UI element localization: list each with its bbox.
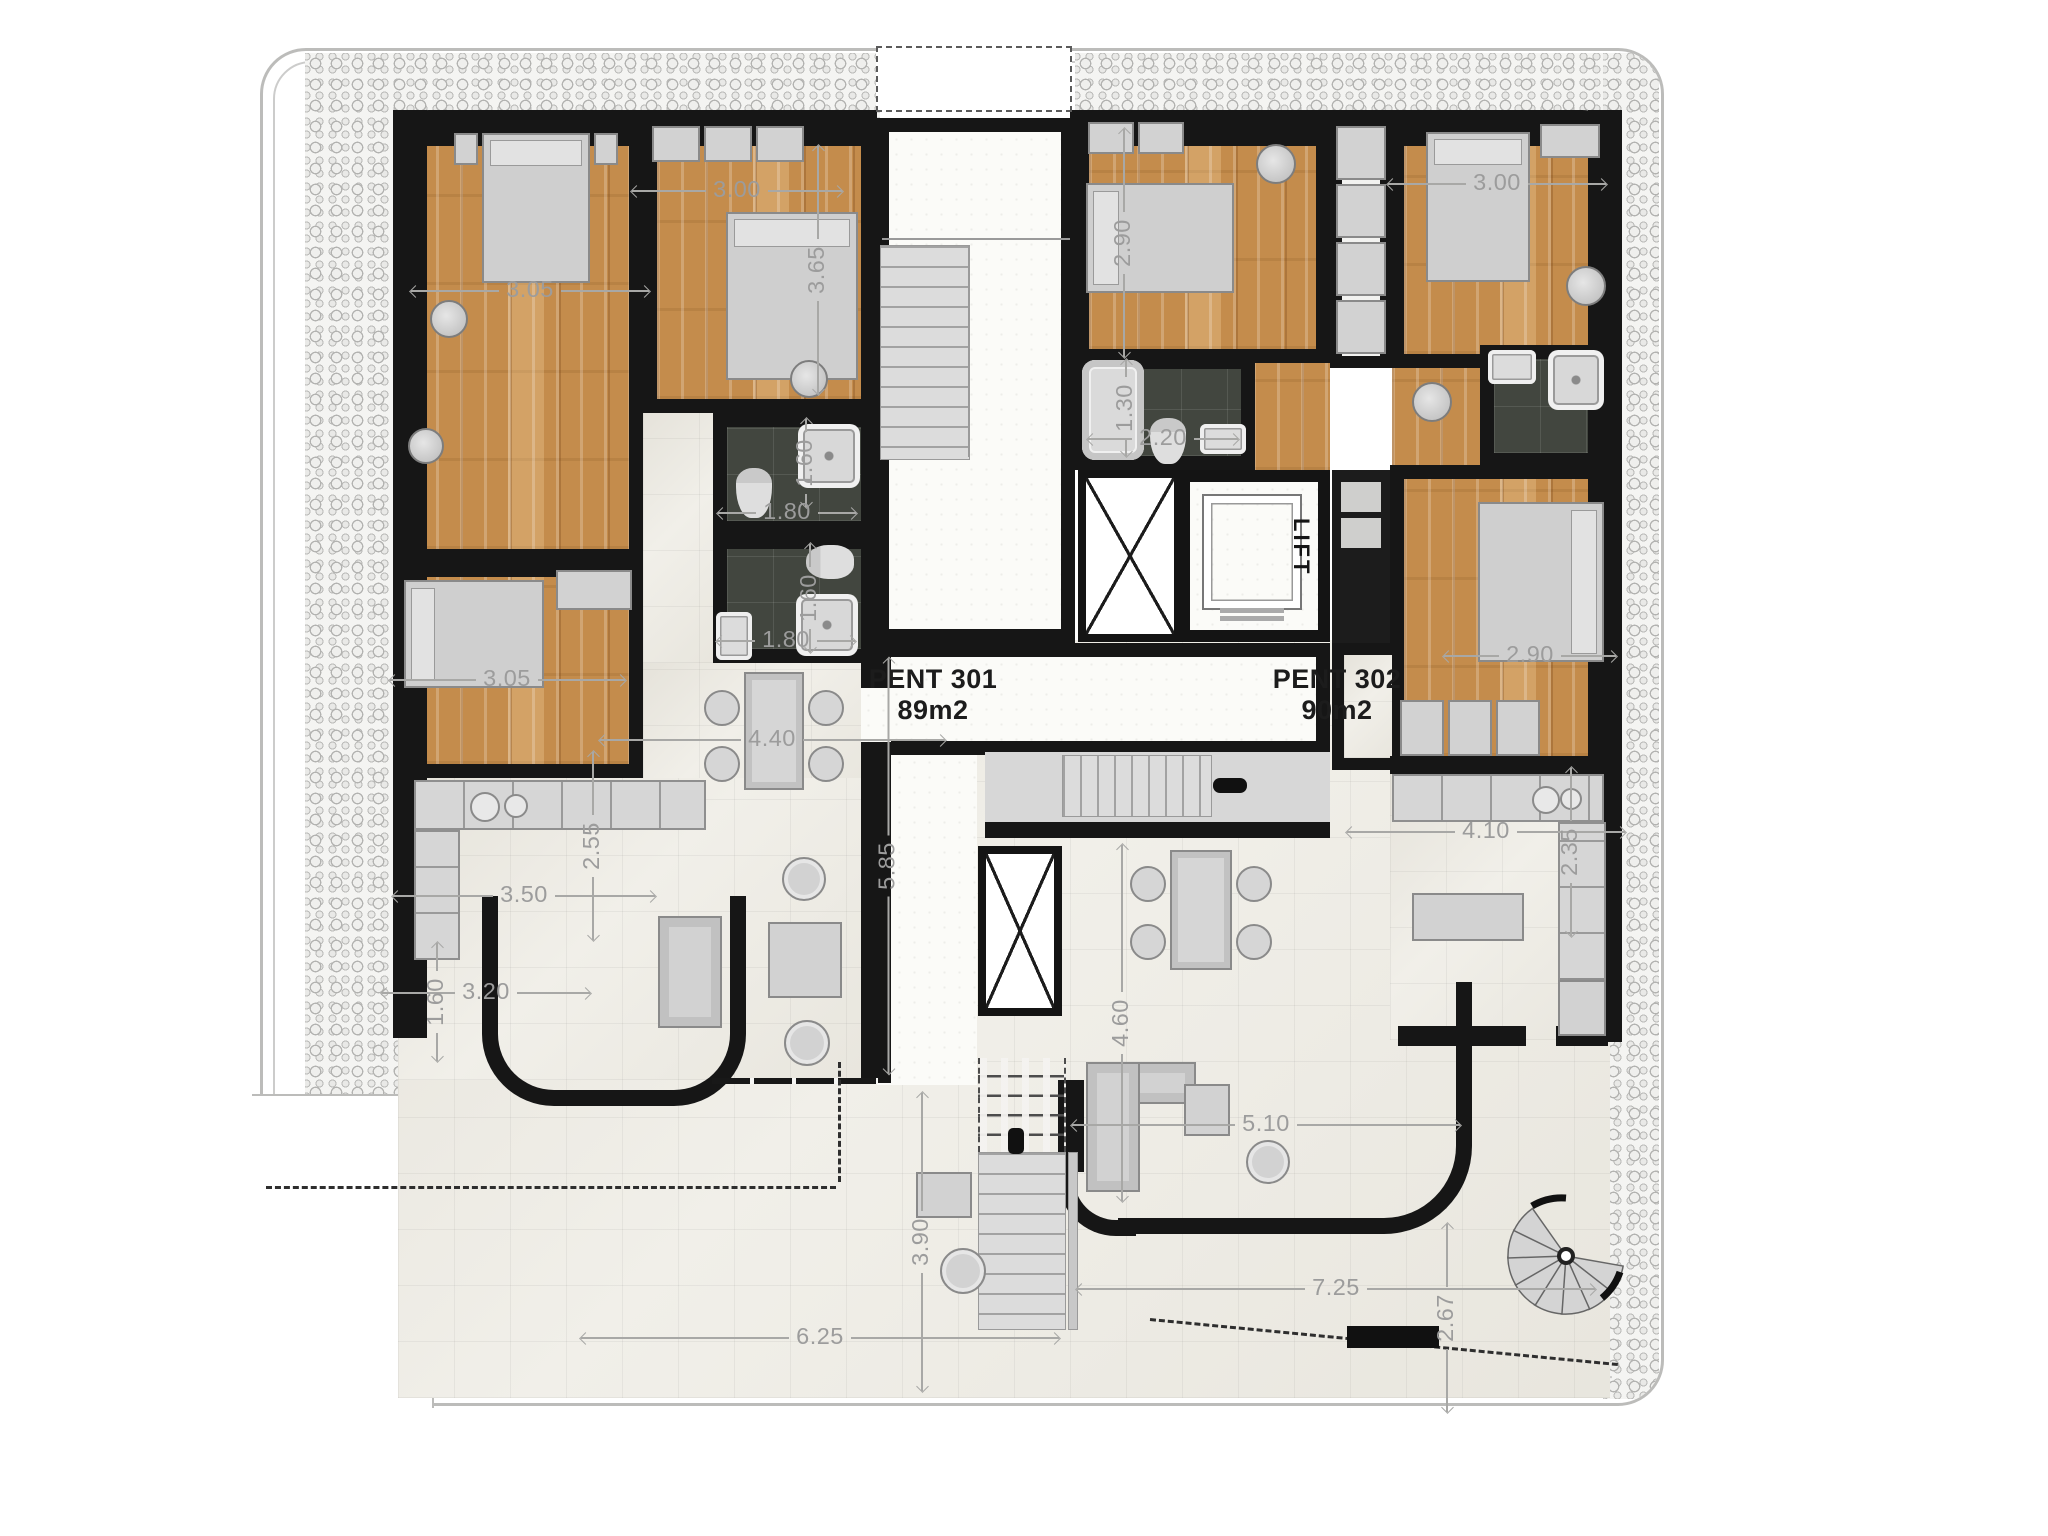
floor-plan-canvas: LIFT (0, 0, 2048, 1536)
dimensions-layer: 3.053.003.652.903.001.302.201.601.801.60… (0, 0, 2048, 1536)
floor-plan-page: { "plan": { "type": "penthouse-floor-pla… (0, 0, 2048, 1536)
